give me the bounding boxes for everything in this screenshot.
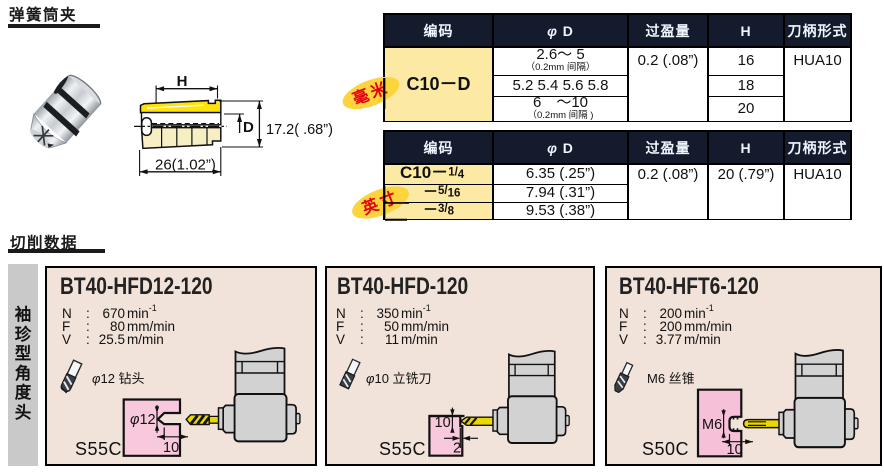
- svg-text:10: 10: [435, 415, 451, 431]
- svg-text:φ12: φ12: [130, 412, 156, 428]
- svg-text:10: 10: [727, 442, 743, 458]
- svg-text:10: 10: [163, 440, 179, 456]
- svg-text:17.2( .68”): 17.2( .68”): [266, 122, 333, 138]
- svg-text:26(1.02”): 26(1.02”): [155, 157, 216, 174]
- svg-text:H: H: [177, 73, 188, 90]
- svg-text:M6: M6: [702, 417, 722, 433]
- svg-text:2: 2: [453, 441, 461, 457]
- svg-text:D: D: [243, 119, 254, 136]
